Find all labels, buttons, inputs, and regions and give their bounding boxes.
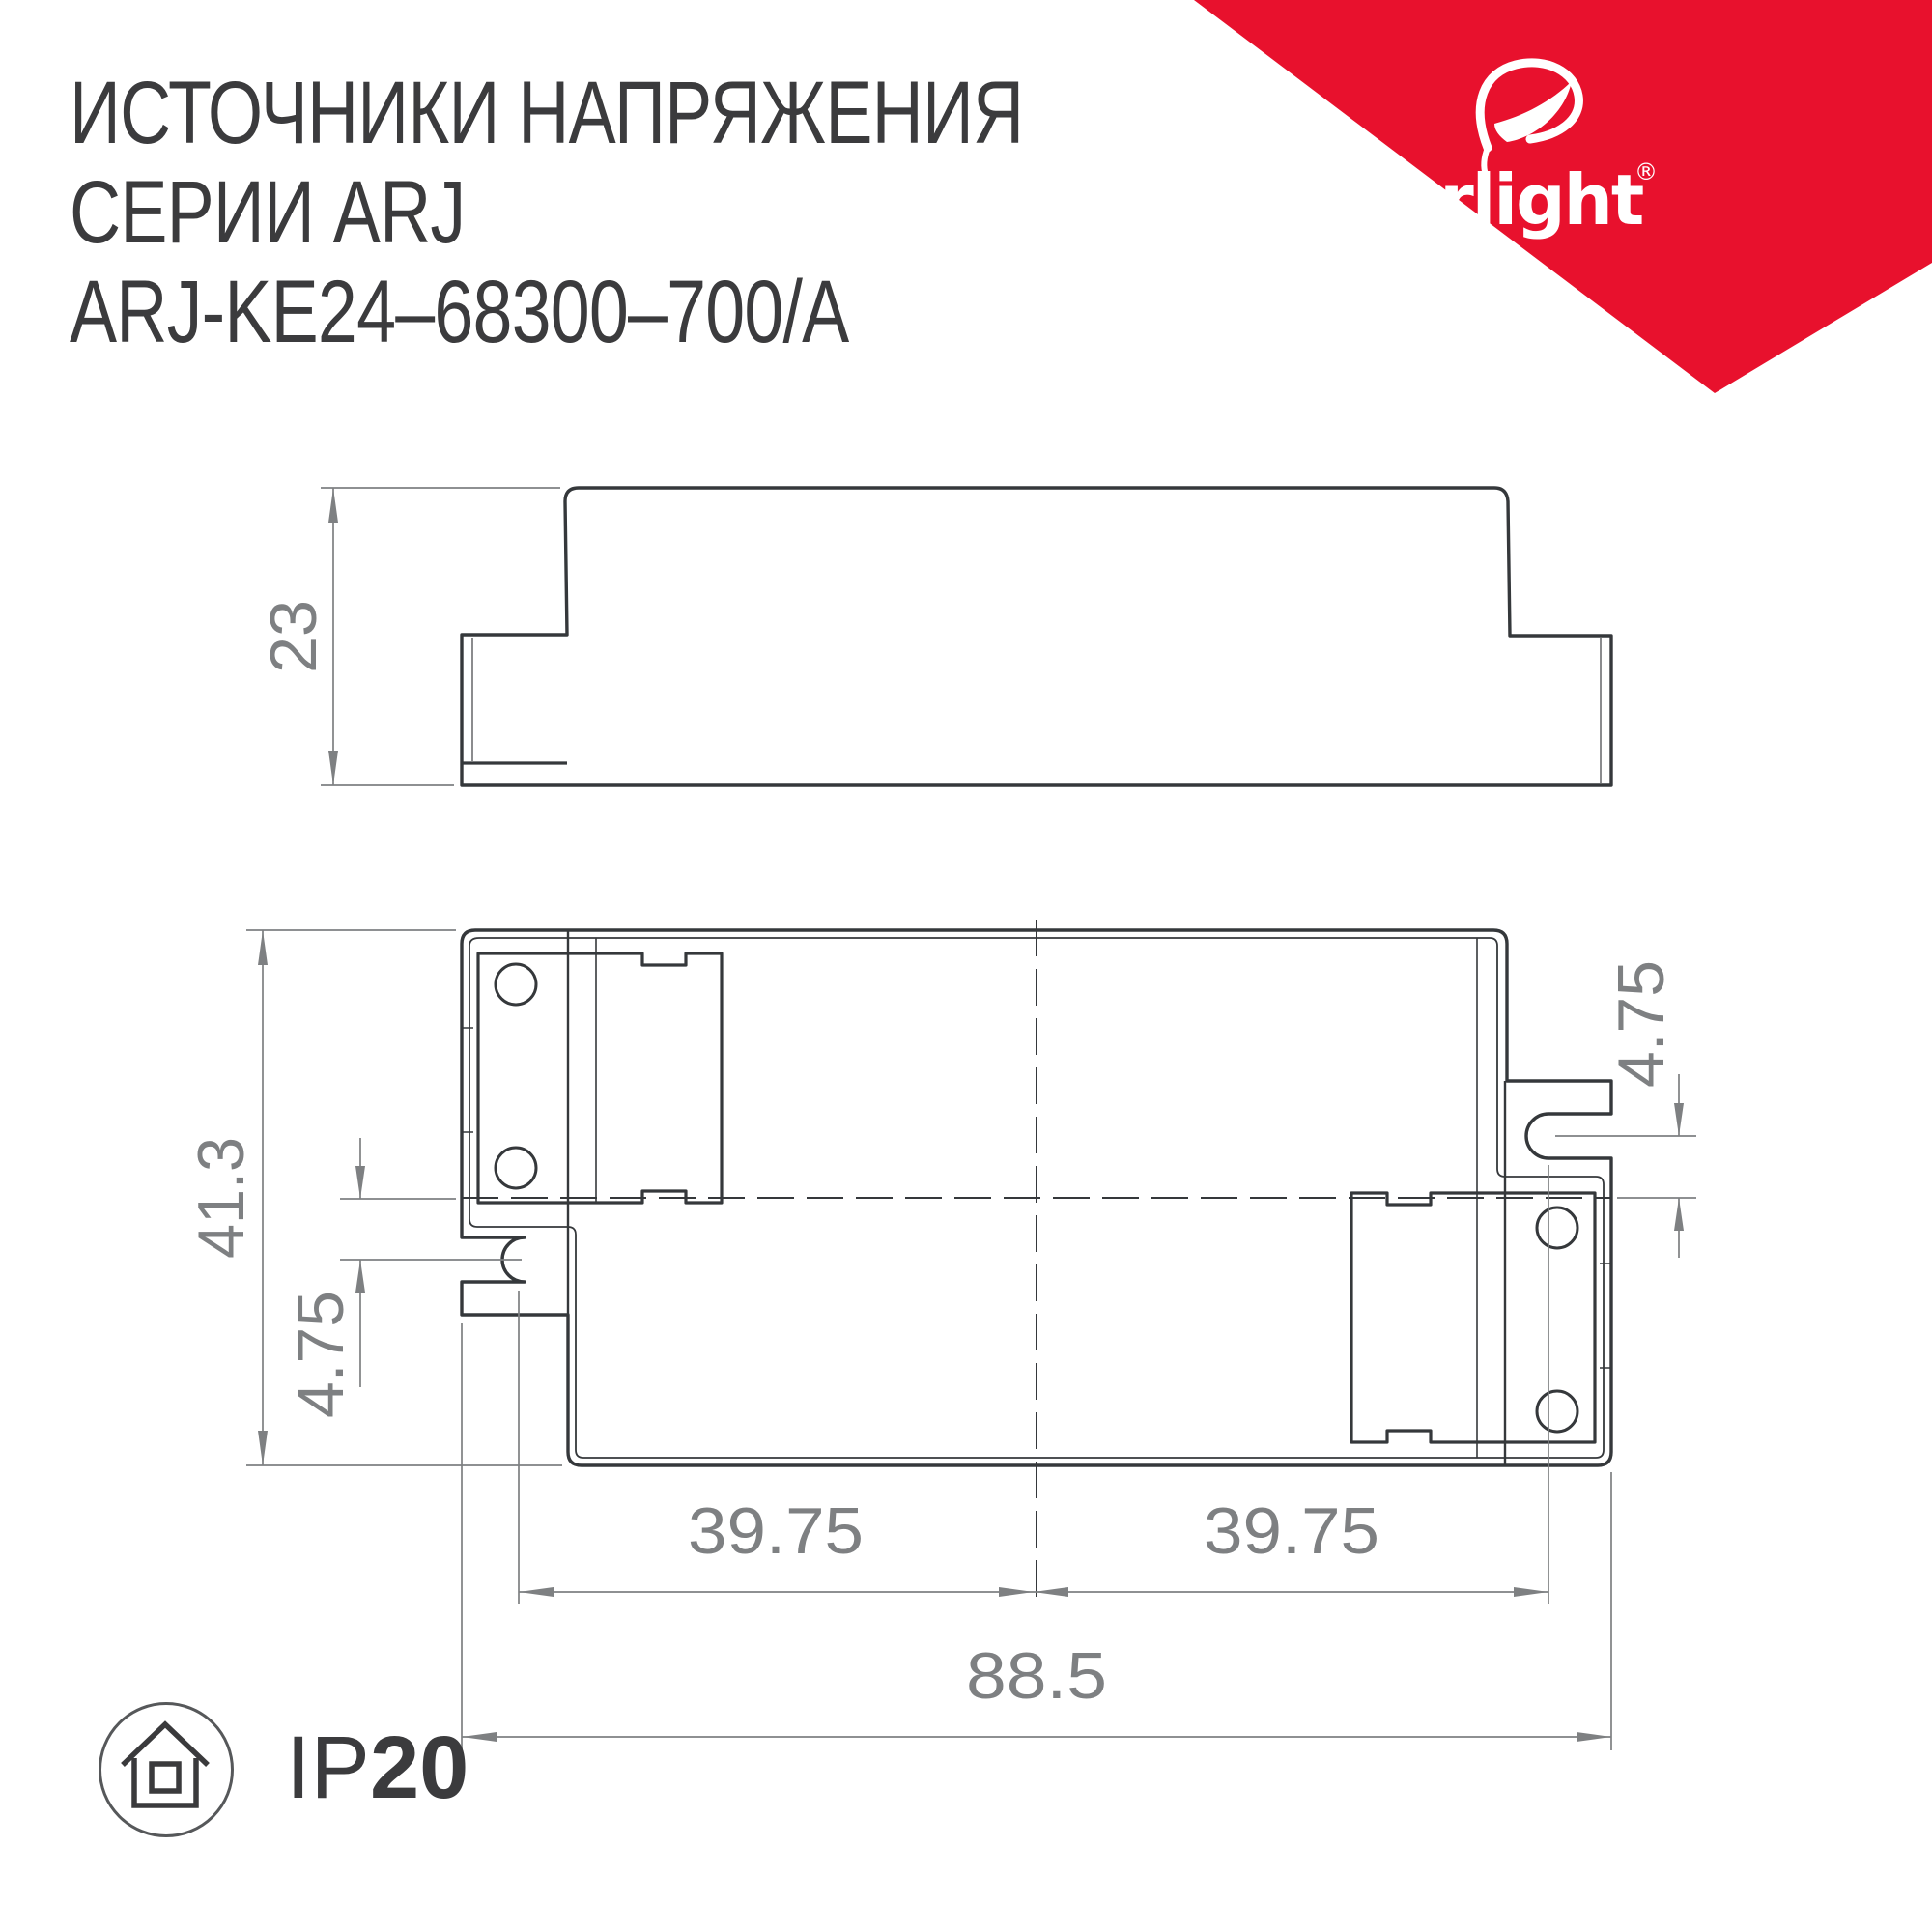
dim-39-75-row: 39.75 39.75 bbox=[519, 1165, 1548, 1604]
arrow-down-icon bbox=[258, 1431, 268, 1465]
arrow-left-icon bbox=[519, 1587, 554, 1597]
datasheet-page: { "header": { "title_line1": "ИСТОЧНИКИ … bbox=[0, 0, 1932, 1932]
logo-registered-icon: ® bbox=[1634, 158, 1658, 185]
dim-4-75-left: 4.75 bbox=[284, 1138, 522, 1418]
logo-wordmark: arlight bbox=[1395, 159, 1643, 241]
technical-drawing: arlight ® bbox=[0, 0, 1932, 1932]
terminal-block-top-left bbox=[478, 953, 722, 1203]
dim-label-4-75-left: 4.75 bbox=[284, 1291, 357, 1418]
dim-label-23: 23 bbox=[257, 600, 330, 673]
arrow-up-icon bbox=[355, 1260, 365, 1293]
ip-rating-badge bbox=[99, 1702, 234, 1837]
arrow-right-icon bbox=[1577, 1732, 1611, 1742]
dim-4-75-right: 4.75 bbox=[1555, 960, 1696, 1258]
brand-corner: arlight ® bbox=[1194, 0, 1932, 393]
dim-label-39-75-left: 39.75 bbox=[688, 1494, 864, 1568]
terminal-hole bbox=[496, 1148, 536, 1188]
top-view bbox=[462, 920, 1611, 1602]
arrow-down-icon bbox=[1674, 1103, 1684, 1136]
ip-prefix: IP bbox=[286, 1719, 370, 1817]
ip-value: 20 bbox=[370, 1719, 469, 1817]
ip-rating-text: IP20 bbox=[286, 1723, 469, 1812]
dim-label-41-3: 41.3 bbox=[185, 1137, 258, 1259]
arrow-left-icon bbox=[1034, 1587, 1068, 1597]
terminal-hole bbox=[1537, 1391, 1577, 1432]
side-view bbox=[462, 488, 1611, 785]
dim-label-4-75-right: 4.75 bbox=[1605, 960, 1678, 1088]
dim-label-39-75-right: 39.75 bbox=[1204, 1494, 1379, 1568]
side-view-outline bbox=[462, 488, 1611, 785]
arrow-down-icon bbox=[355, 1166, 365, 1199]
arrow-up-icon bbox=[1674, 1198, 1684, 1231]
arrow-up-icon bbox=[328, 488, 338, 523]
house-icon bbox=[99, 1702, 234, 1837]
arrow-right-icon bbox=[999, 1587, 1034, 1597]
terminal-hole bbox=[1537, 1207, 1577, 1248]
dim-23: 23 bbox=[257, 488, 560, 785]
dimensions: 23 41.3 4.75 4.75 bbox=[185, 488, 1696, 1750]
terminal-block-bottom-right bbox=[1351, 1193, 1595, 1442]
dim-41-3: 41.3 bbox=[185, 930, 562, 1465]
arrow-right-icon bbox=[1514, 1587, 1548, 1597]
house-window bbox=[152, 1764, 179, 1791]
arrow-up-icon bbox=[258, 930, 268, 965]
arrow-down-icon bbox=[328, 751, 338, 785]
terminal-hole bbox=[496, 964, 536, 1005]
dim-label-88-5: 88.5 bbox=[966, 1639, 1107, 1713]
